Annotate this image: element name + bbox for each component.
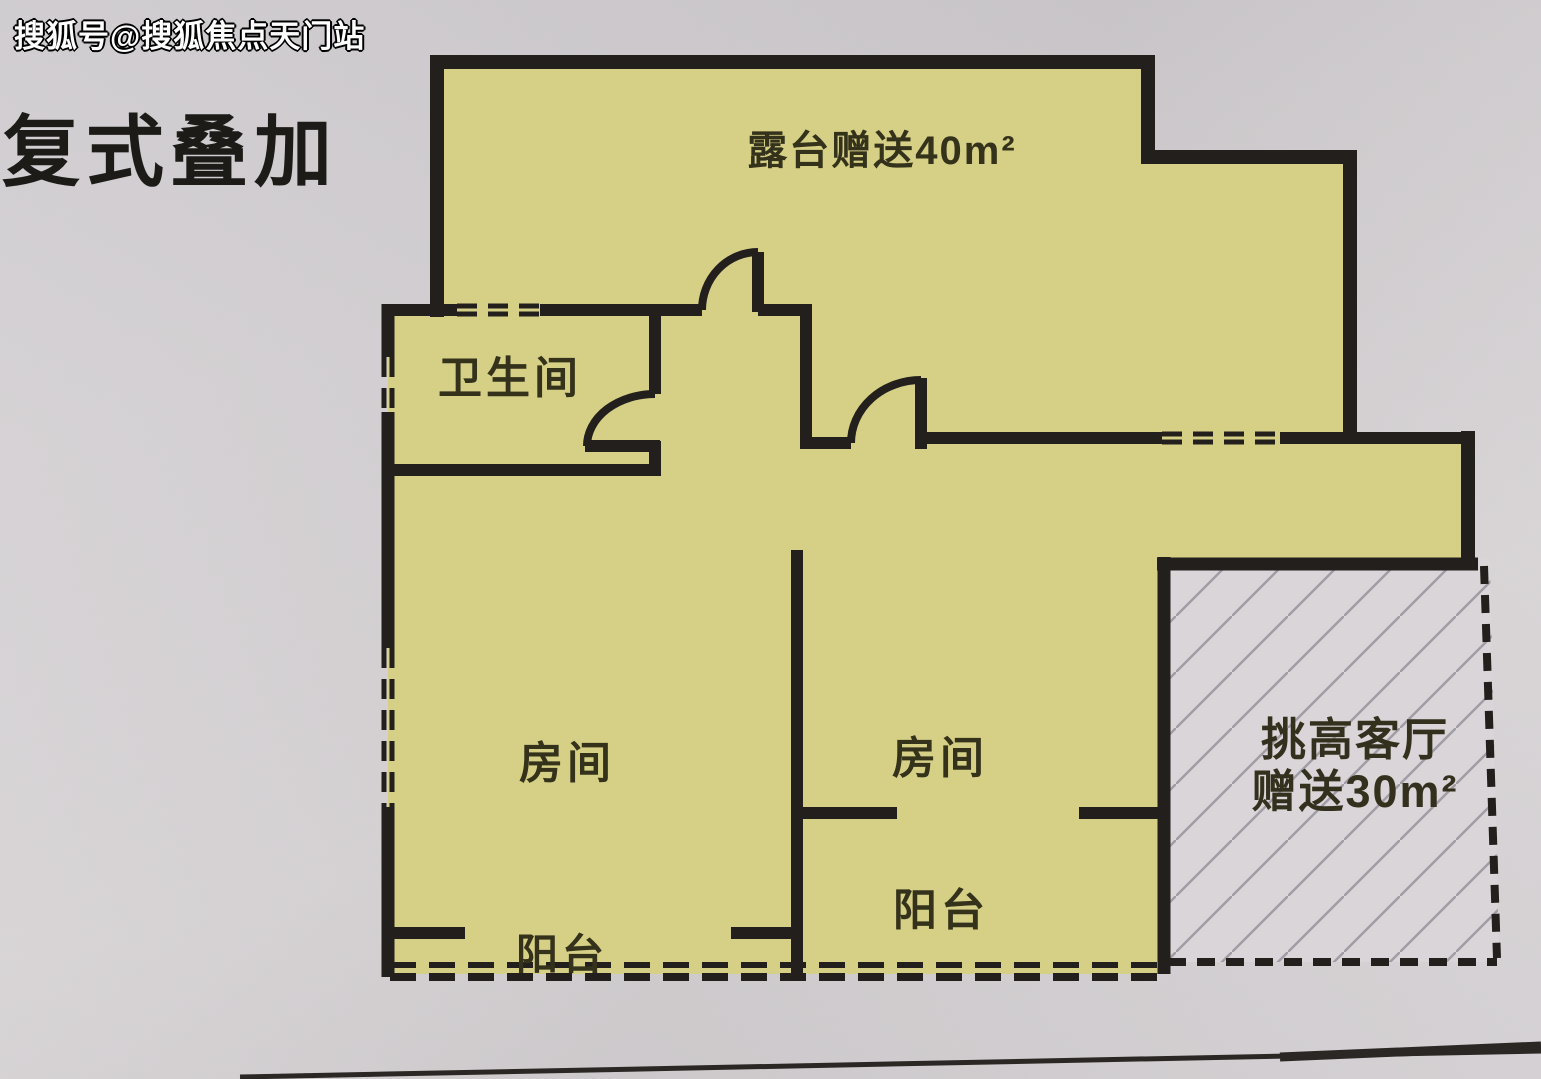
living-room-label-line2: 赠送30m²: [1200, 766, 1510, 818]
photo-bottom-edge: [240, 1046, 1541, 1077]
page-title: 复式叠加: [2, 90, 338, 202]
living-room-label: 挑高客厅 赠送30m²: [1200, 714, 1510, 818]
living-room-label-line1: 挑高客厅: [1200, 714, 1510, 766]
bathroom-label: 卫生间: [420, 342, 600, 406]
balcony-right-label: 阳台: [841, 874, 1041, 938]
bedroom-left-label: 房间: [467, 727, 667, 791]
watermark: 搜狐号@搜狐焦点天门站: [14, 11, 365, 56]
balcony-left-label: 阳台: [462, 921, 662, 982]
bedroom-right-label: 房间: [840, 722, 1040, 786]
terrace-label: 露台赠送40m²: [660, 118, 1104, 176]
